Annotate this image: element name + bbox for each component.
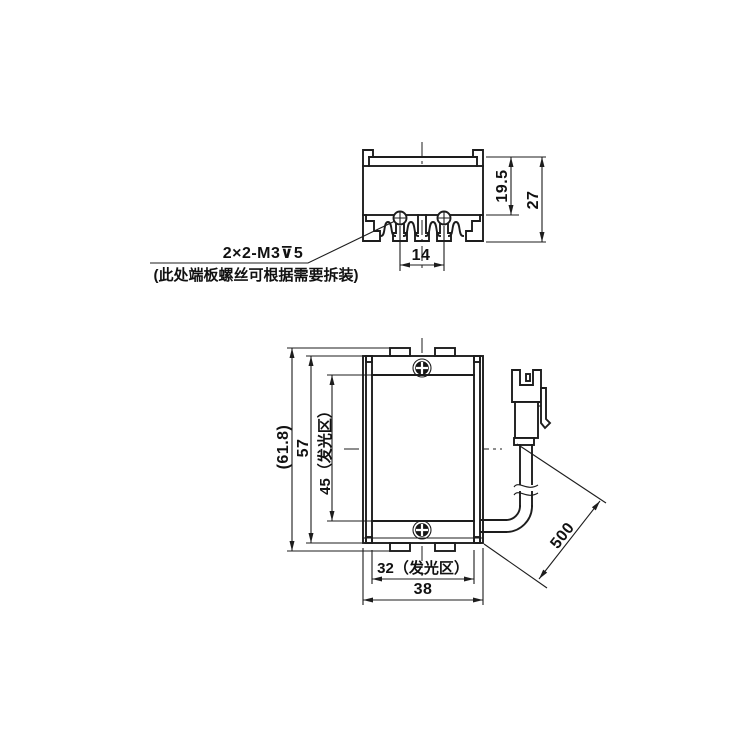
connector-latch — [541, 388, 550, 428]
profile-hook-left — [363, 150, 373, 166]
note-remark: (此处端板螺丝可根据需要拆装) — [154, 266, 359, 284]
dim-text-14: 14 — [412, 247, 431, 264]
cable-bend — [506, 506, 532, 532]
fin-foot-left — [363, 215, 380, 241]
connector-pin — [526, 374, 530, 381]
tab-top-right — [435, 348, 455, 356]
fin-foot-right — [466, 215, 483, 241]
arrowhead — [309, 356, 314, 366]
arrowhead — [290, 541, 295, 551]
arrowhead — [330, 511, 335, 521]
cable-collar — [514, 438, 534, 445]
arrowhead — [290, 348, 295, 358]
tab-bottom-right — [435, 543, 455, 551]
cable-horizontal — [481, 520, 506, 532]
dim-text-32: 32（发光区） — [377, 559, 469, 577]
extension-line — [517, 444, 606, 503]
arrowhead — [509, 157, 514, 167]
arrowhead — [540, 157, 545, 167]
drawing-canvas: 19.5 27 14 2×2-M3⊽5 (此处端板螺丝可根据需要拆装) — [0, 0, 750, 750]
connector-body — [515, 402, 538, 438]
arrowhead — [464, 577, 474, 582]
cable-break-symbol — [514, 485, 538, 496]
fin-arch-2 — [404, 222, 418, 236]
dim-32: 32（发光区） — [372, 550, 474, 584]
arrowhead — [309, 533, 314, 543]
note-thread-spec: 2×2-M3⊽5 — [223, 245, 304, 262]
arrowhead — [539, 570, 547, 579]
cable — [481, 445, 538, 532]
dim-text-27: 27 — [525, 191, 542, 210]
profile-body-rect — [363, 166, 483, 215]
profile-hook-right — [473, 150, 483, 166]
front-body-rect — [363, 356, 483, 543]
side-profile-view: 19.5 27 14 2×2-M3⊽5 (此处端板螺丝可根据需要拆装) — [150, 142, 546, 284]
dim-500: 500 — [484, 444, 606, 588]
fin-arch-3 — [426, 222, 440, 236]
arrowhead — [509, 205, 514, 215]
cable-upper — [520, 445, 532, 484]
arrowhead — [330, 375, 335, 385]
dim-text-500: 500 — [547, 519, 578, 552]
tab-top-left — [390, 348, 410, 356]
arrowhead — [540, 232, 545, 242]
arrowhead — [363, 598, 373, 603]
dim-text-45: 45（发光区） — [316, 403, 334, 495]
arrowhead — [400, 263, 410, 268]
arrowhead — [372, 577, 382, 582]
dim-text-61-8: (61.8) — [275, 425, 292, 470]
extension-line — [484, 544, 547, 588]
arrowhead — [434, 263, 444, 268]
thread-note: 2×2-M3⊽5 (此处端板螺丝可根据需要拆装) — [150, 221, 395, 284]
arrowhead — [473, 598, 483, 603]
fin-arch-4 — [449, 222, 463, 236]
front-view: (61.8) 57 45（发光区） 32（发光区） — [275, 338, 606, 605]
dim-text-19-5: 19.5 — [494, 169, 511, 202]
tab-bottom-left — [390, 543, 410, 551]
connector — [512, 370, 550, 445]
dim-text-38: 38 — [414, 581, 433, 598]
dim-text-57: 57 — [295, 439, 312, 458]
profile-body — [363, 150, 483, 215]
